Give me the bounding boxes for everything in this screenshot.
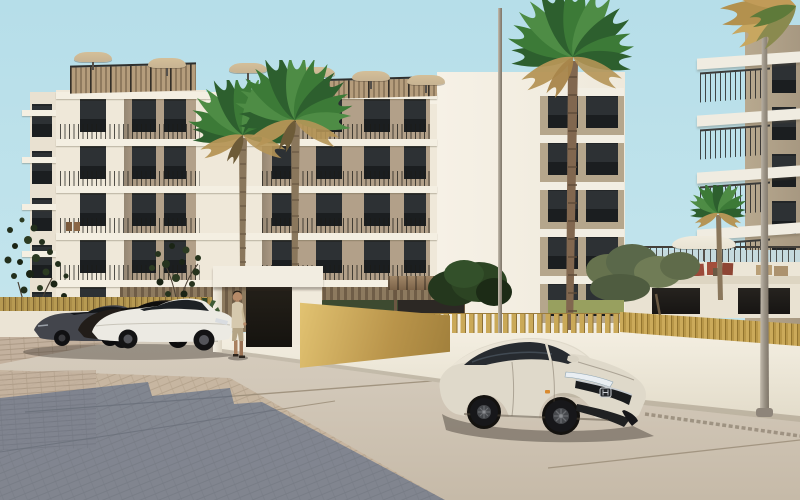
honda-body-group: [440, 338, 646, 435]
pole-base: [756, 408, 773, 417]
white-honda-sedan: [428, 322, 666, 457]
person-figure: [232, 291, 247, 358]
pedestrian-man: [222, 288, 256, 366]
person-head: [233, 292, 243, 302]
render-scene: [0, 0, 800, 500]
dry-palm-fronds: [688, 0, 800, 100]
frond-fan: [719, 0, 800, 51]
amber-marker: [545, 390, 550, 394]
entrance-canopy: [213, 266, 323, 287]
car-wheel-rear: [470, 398, 498, 426]
car-wheel-front: [545, 400, 577, 432]
person-hand: [243, 322, 246, 325]
person-shorts: [232, 326, 244, 341]
entrance-portal: [0, 0, 800, 500]
street-light-pole-far: [498, 8, 502, 333]
